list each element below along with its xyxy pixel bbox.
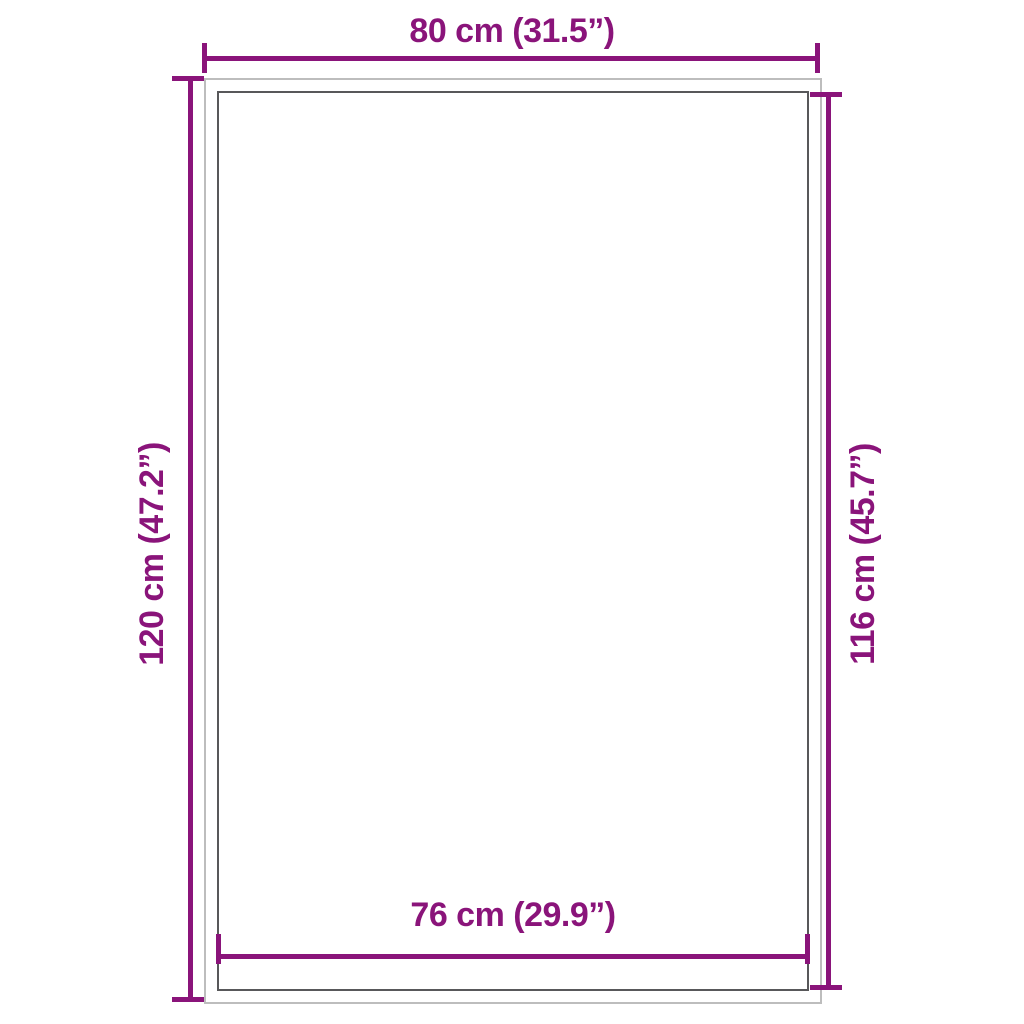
bottom-dimension-cap-right [805, 934, 810, 964]
top-dimension-line [204, 56, 820, 61]
right-dimension-label: 116 cm (45.7”) [846, 443, 880, 665]
left-dimension-cap-bottom [172, 997, 204, 1002]
right-dimension-cap-bottom [810, 985, 842, 990]
left-dimension-label: 120 cm (47.2”) [135, 442, 169, 666]
product-outline-inner [217, 91, 809, 991]
dimension-diagram: 80 cm (31.5”) 120 cm (47.2”) 116 cm (45.… [0, 0, 1024, 1024]
left-dimension-cap-top [172, 76, 204, 81]
top-dimension-label: 80 cm (31.5”) [204, 14, 820, 48]
bottom-dimension-line [218, 954, 808, 959]
right-dimension-line [826, 92, 831, 990]
left-dimension-line [188, 78, 193, 1002]
right-dimension-cap-top [810, 92, 842, 97]
bottom-dimension-cap-left [216, 934, 221, 964]
bottom-dimension-label: 76 cm (29.9”) [218, 898, 808, 932]
